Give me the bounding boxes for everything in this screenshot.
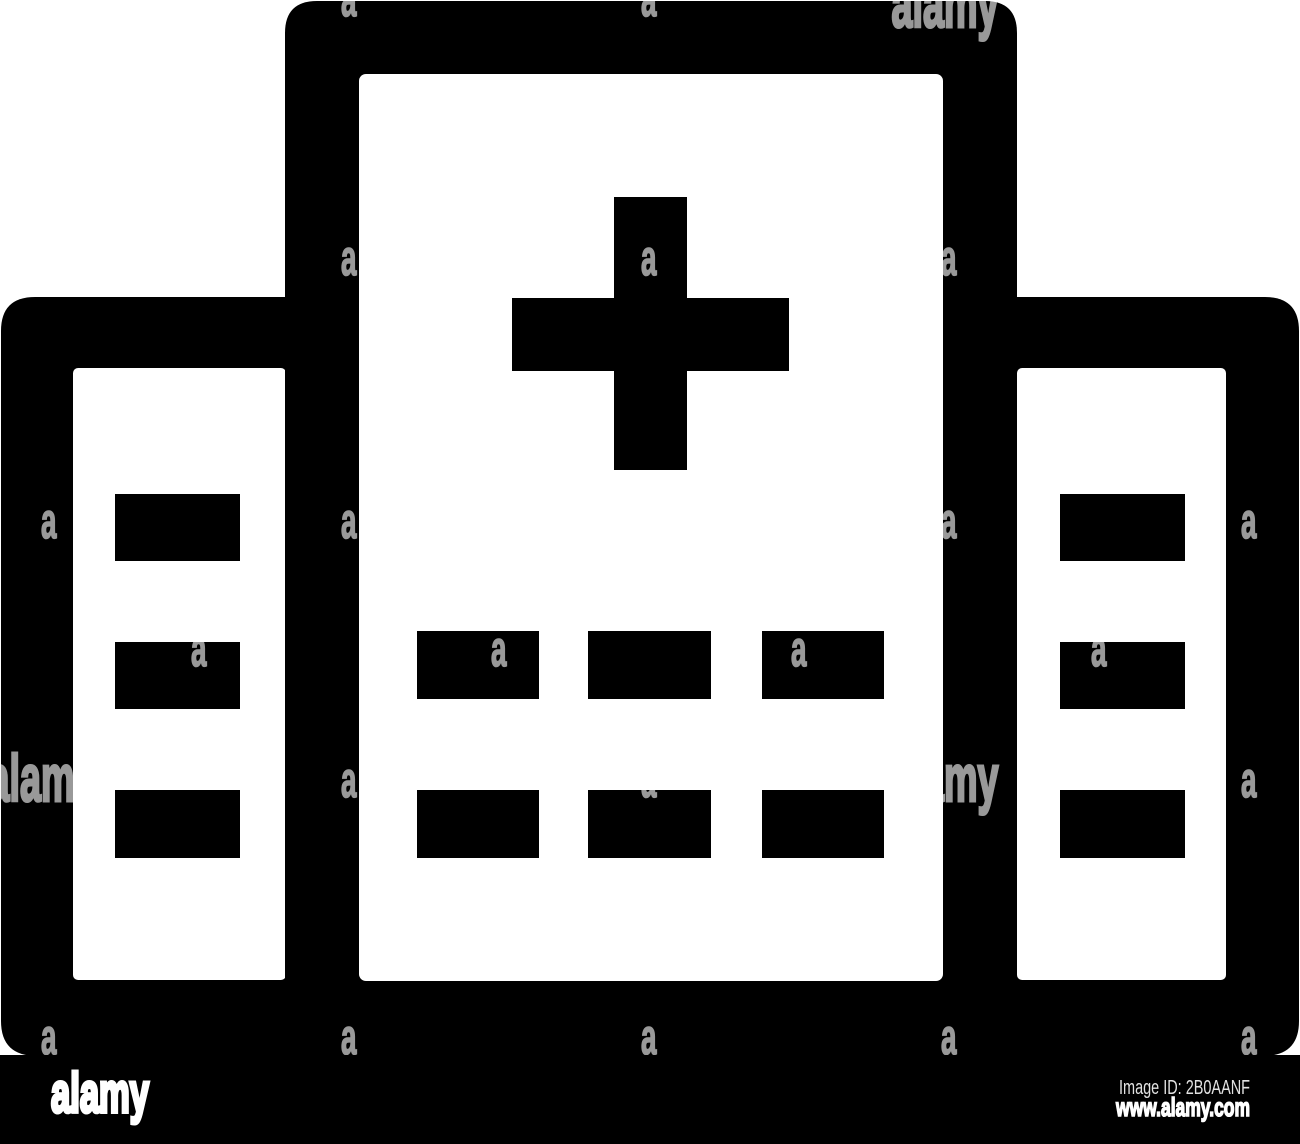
svg-text:a: a bbox=[641, 752, 657, 808]
svg-text:a: a bbox=[341, 752, 357, 808]
svg-text:alamy: alamy bbox=[51, 1061, 149, 1124]
svg-text:a: a bbox=[491, 621, 507, 677]
svg-text:www.alamy.com: www.alamy.com bbox=[1115, 1092, 1250, 1122]
svg-text:a: a bbox=[341, 493, 357, 549]
svg-text:a: a bbox=[1241, 752, 1257, 808]
svg-text:a: a bbox=[941, 230, 957, 286]
svg-text:a: a bbox=[191, 621, 207, 677]
svg-text:a: a bbox=[341, 230, 357, 286]
svg-text:a: a bbox=[941, 493, 957, 549]
svg-text:alamy: alamy bbox=[892, 741, 999, 815]
svg-text:a: a bbox=[1091, 621, 1107, 677]
svg-text:a: a bbox=[641, 230, 657, 286]
svg-text:a: a bbox=[791, 621, 807, 677]
svg-text:alamy: alamy bbox=[892, 0, 999, 41]
svg-text:a: a bbox=[1241, 493, 1257, 549]
svg-text:alamy: alamy bbox=[0, 741, 96, 815]
svg-text:a: a bbox=[641, 0, 657, 27]
svg-text:a: a bbox=[41, 493, 57, 549]
svg-text:a: a bbox=[341, 0, 357, 27]
